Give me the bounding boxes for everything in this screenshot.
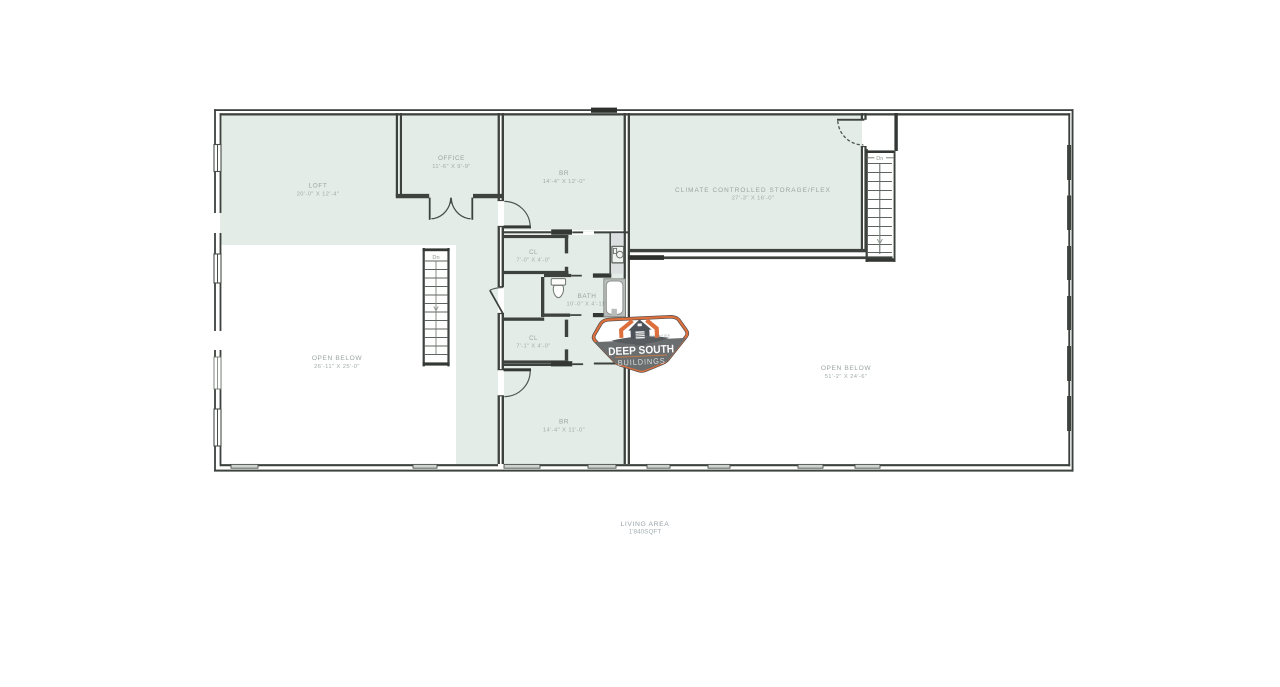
svg-text:7'-0" X 4'-0": 7'-0" X 4'-0" — [516, 258, 550, 264]
svg-text:CL: CL — [529, 250, 538, 256]
svg-text:CLIMATE CONTROLLED STORAGE/FLE: CLIMATE CONTROLLED STORAGE/FLEX — [675, 187, 831, 194]
svg-text:14'-4" X 12'-0": 14'-4" X 12'-0" — [543, 179, 586, 185]
svg-text:51'-2" X 24'-6": 51'-2" X 24'-6" — [825, 374, 868, 380]
svg-text:LIVING AREA: LIVING AREA — [621, 521, 670, 528]
svg-text:BATH: BATH — [578, 293, 597, 300]
svg-text:OFFICE: OFFICE — [438, 155, 465, 162]
svg-text:CL: CL — [529, 336, 538, 342]
svg-text:26'-11" X 25'-0": 26'-11" X 25'-0" — [314, 364, 360, 370]
svg-text:1'840SQFT: 1'840SQFT — [629, 529, 662, 536]
svg-text:27'-3" X 16'-0": 27'-3" X 16'-0" — [732, 196, 775, 202]
svg-text:11'-6" X 9'-9": 11'-6" X 9'-9" — [432, 164, 471, 170]
svg-text:Dn: Dn — [876, 156, 883, 162]
svg-text:OPEN BELOW: OPEN BELOW — [821, 365, 872, 372]
svg-text:10'-0" X 4'-11": 10'-0" X 4'-11" — [567, 302, 608, 308]
svg-text:LOFT: LOFT — [309, 183, 328, 190]
svg-text:7'-1" X 4'-0": 7'-1" X 4'-0" — [516, 344, 550, 350]
svg-text:20'-0" X 12'-4": 20'-0" X 12'-4" — [297, 192, 340, 198]
svg-text:BR: BR — [559, 419, 569, 426]
svg-text:OPEN BELOW: OPEN BELOW — [312, 355, 363, 362]
svg-text:BR: BR — [559, 170, 569, 177]
svg-text:14'-4" X 11'-0": 14'-4" X 11'-0" — [543, 428, 585, 434]
svg-text:Dn: Dn — [432, 255, 439, 261]
